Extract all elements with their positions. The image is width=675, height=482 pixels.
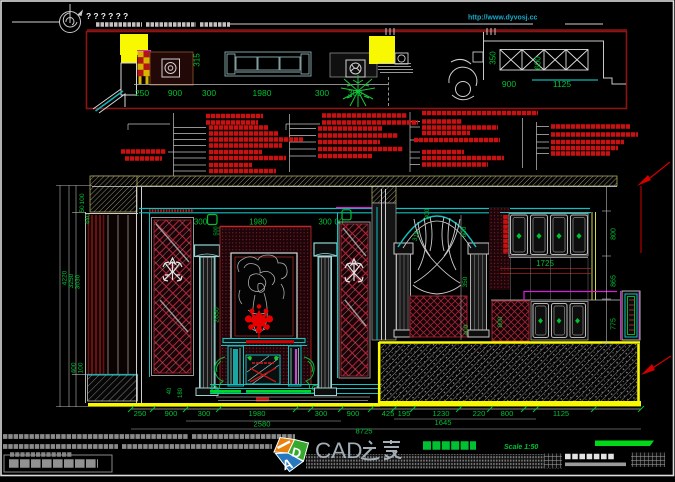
svg-text:775: 775	[611, 318, 618, 330]
svg-text:800: 800	[424, 208, 431, 219]
svg-text:300: 300	[202, 88, 216, 98]
svg-text:1980: 1980	[249, 409, 266, 418]
svg-text:900: 900	[165, 409, 178, 418]
svg-text:300: 300	[194, 218, 208, 227]
svg-text:1980: 1980	[253, 88, 272, 98]
svg-text:1980: 1980	[249, 218, 267, 227]
svg-text:100: 100	[79, 193, 86, 204]
svg-text:800: 800	[611, 228, 618, 240]
svg-text:350: 350	[462, 276, 469, 287]
svg-text:40: 40	[167, 387, 173, 394]
svg-text:195: 195	[398, 409, 411, 418]
svg-text:100: 100	[78, 362, 85, 373]
svg-text:3030: 3030	[75, 274, 82, 289]
svg-text:2830: 2830	[214, 307, 221, 323]
svg-text:350: 350	[489, 51, 498, 65]
svg-text:425: 425	[382, 409, 395, 418]
svg-text:600: 600	[534, 56, 543, 70]
svg-text:300: 300	[315, 88, 329, 98]
svg-text:400: 400	[71, 362, 78, 373]
svg-text:250: 250	[135, 88, 149, 98]
svg-text:250: 250	[134, 409, 147, 418]
svg-text:300: 300	[315, 409, 328, 418]
svg-text:CAD: CAD	[315, 438, 363, 463]
svg-text:900: 900	[347, 409, 360, 418]
svg-text:900: 900	[502, 79, 516, 89]
svg-text:Scale 1:50: Scale 1:50	[504, 444, 538, 451]
svg-text:http://www.dyvosj.cc: http://www.dyvosj.cc	[468, 15, 537, 22]
svg-text:800: 800	[497, 316, 504, 327]
svg-text:1125: 1125	[553, 79, 572, 89]
svg-text:300: 300	[318, 218, 332, 227]
svg-text:1725: 1725	[536, 259, 554, 268]
svg-text:300: 300	[198, 409, 211, 418]
svg-text:50: 50	[79, 205, 86, 213]
svg-text:315: 315	[193, 53, 202, 67]
svg-text:1230: 1230	[433, 409, 450, 418]
svg-text:400: 400	[463, 324, 470, 335]
svg-text:2580: 2580	[254, 420, 271, 429]
svg-text:800: 800	[501, 409, 514, 418]
svg-text:600: 600	[461, 226, 468, 237]
svg-text:220: 220	[473, 409, 486, 418]
svg-text:900: 900	[168, 88, 182, 98]
svg-text:865: 865	[611, 275, 618, 287]
svg-text:1645: 1645	[435, 418, 452, 427]
svg-text:180: 180	[178, 387, 184, 398]
svg-text:??????: ??????	[86, 11, 130, 21]
svg-text:440: 440	[85, 213, 92, 224]
svg-text:300: 300	[348, 88, 362, 98]
svg-text:1125: 1125	[553, 409, 569, 418]
svg-text:8725: 8725	[356, 427, 373, 436]
